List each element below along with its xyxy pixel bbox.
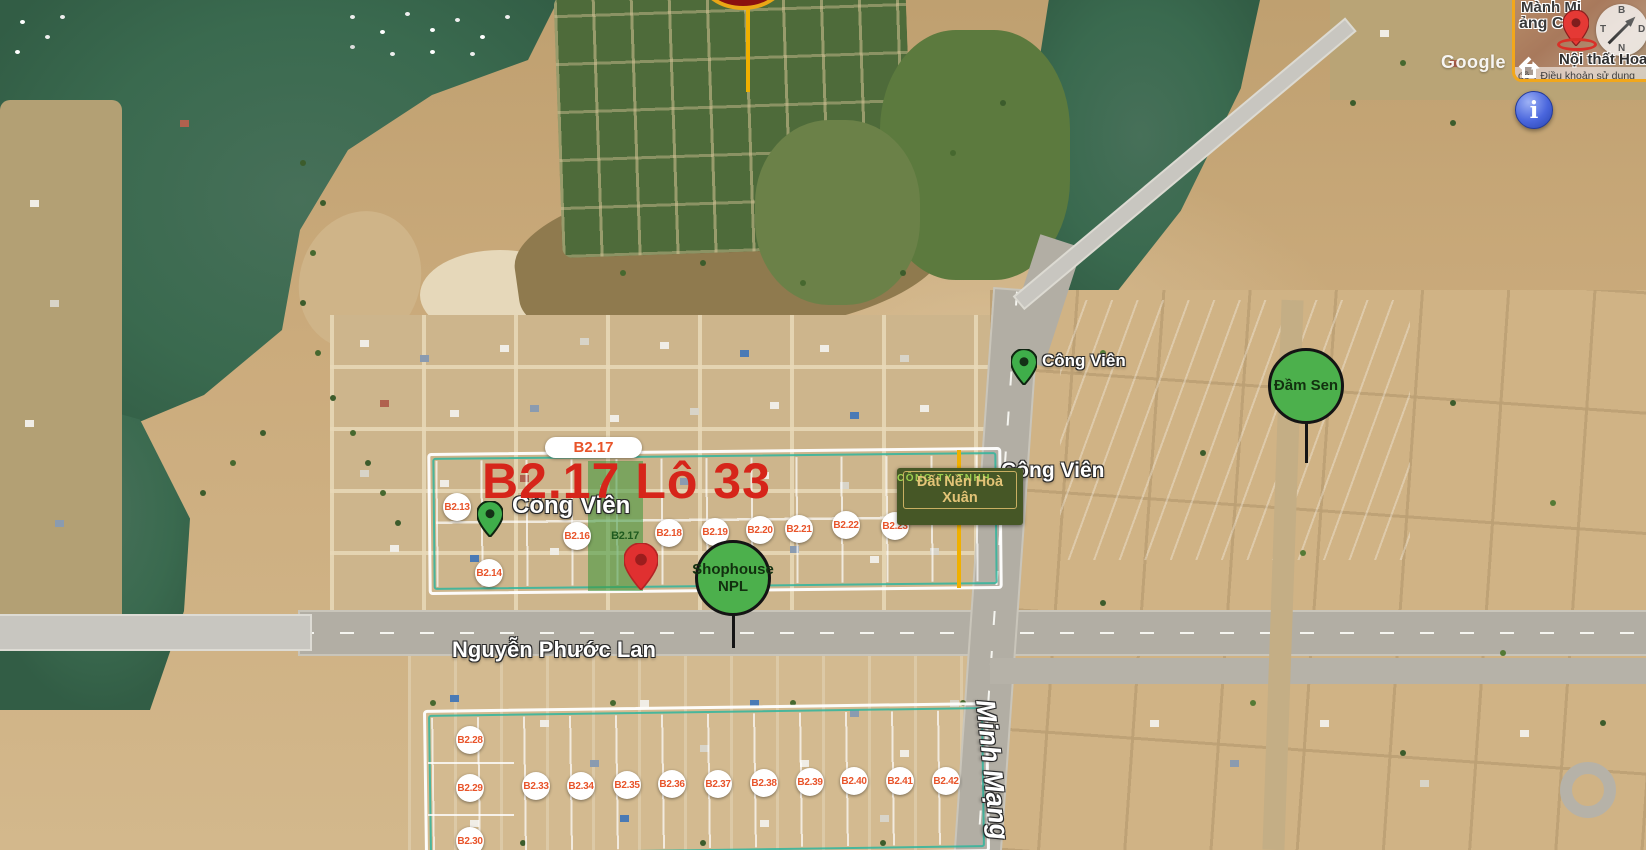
shophouse-npl-poi[interactable]: Shophouse NPL — [695, 540, 771, 616]
open-in-maps-icon[interactable] — [1521, 55, 1547, 81]
lot-marker[interactable]: B2.16 — [563, 522, 591, 550]
info-button[interactable]: i — [1515, 91, 1553, 129]
shophouse-poi-line2: NPL — [718, 578, 748, 595]
compass-west-label: T — [1600, 24, 1606, 35]
compass-east-label: D — [1638, 24, 1645, 35]
lot-marker[interactable]: B2.30 — [456, 827, 484, 850]
lot-marker[interactable]: B2.13 — [443, 493, 471, 521]
lot-marker[interactable]: B2.29 — [456, 774, 484, 802]
selected-lot-title: B2.17 Lô 33 — [482, 452, 771, 510]
dam-sen-leader-line — [1305, 421, 1308, 463]
compass-north-label: B — [1618, 5, 1625, 16]
info-button-glyph: i — [1530, 97, 1539, 124]
lot-marker[interactable]: B2.39 — [796, 768, 824, 796]
lot-marker[interactable]: B2.33 — [522, 772, 550, 800]
lot-marker[interactable]: B2.36 — [658, 770, 686, 798]
shophouse-leader-line — [732, 613, 735, 648]
pin-highlight-ring — [1557, 38, 1597, 51]
lot-marker[interactable]: B2.21 — [785, 515, 813, 543]
compass-needle-icon — [1606, 14, 1639, 47]
lot-marker[interactable]: B2.18 — [655, 519, 683, 547]
lot-marker[interactable]: B2.35 — [613, 771, 641, 799]
google-watermark: Google — [1441, 52, 1506, 73]
lot-marker[interactable]: B2.40 — [840, 767, 868, 795]
lot-marker[interactable]: B2.28 — [456, 726, 484, 754]
shophouse-poi-line1: Shophouse — [692, 561, 774, 578]
company-card-line2: Đất Nền Hoà Xuân — [903, 471, 1017, 509]
lot-markers-layer: B2.13B2.14B2.16B2.17B2.18B2.19B2.20B2.21… — [0, 0, 1646, 850]
compass-control[interactable]: B T D N — [1596, 4, 1646, 56]
mini-map-widget[interactable]: Mành Mi ảng Cáo B T D N Nội thất Hoa đồ … — [1512, 0, 1646, 82]
terms-of-use-link[interactable]: Điều khoản sử dụng — [1540, 70, 1635, 82]
lot-marker[interactable]: B2.37 — [704, 770, 732, 798]
dam-sen-poi-label: Đầm Sen — [1274, 377, 1338, 394]
selected-lot-pin-icon[interactable] — [624, 543, 658, 590]
park-pin-label: Công Viên — [1042, 351, 1126, 371]
store-map-label: Nội thất Hoa — [1559, 51, 1646, 68]
lot-marker[interactable]: B2.14 — [475, 559, 503, 587]
lot-marker[interactable]: B2.41 — [886, 767, 914, 795]
street-label-nguyen-phuoc-lan: Nguyễn Phước Lan — [452, 637, 656, 663]
lot-marker[interactable]: B2.42 — [932, 767, 960, 795]
lot-label-green[interactable]: B2.17 — [608, 529, 642, 543]
lot-marker[interactable]: B2.20 — [746, 516, 774, 544]
company-card[interactable]: CÔNG TY TNHH Đất Nền Hoà Xuân — [897, 468, 1023, 525]
dam-sen-poi[interactable]: Đầm Sen — [1268, 348, 1344, 424]
lot-marker[interactable]: B2.38 — [750, 769, 778, 797]
lot-marker[interactable]: B2.22 — [832, 511, 860, 539]
lot-marker[interactable]: B2.34 — [567, 772, 595, 800]
map-viewport[interactable]: Công Viên B2.17 B2.17 Lô 33 Công Viên Ng… — [0, 0, 1646, 850]
park-pin-icon[interactable] — [1011, 349, 1037, 385]
